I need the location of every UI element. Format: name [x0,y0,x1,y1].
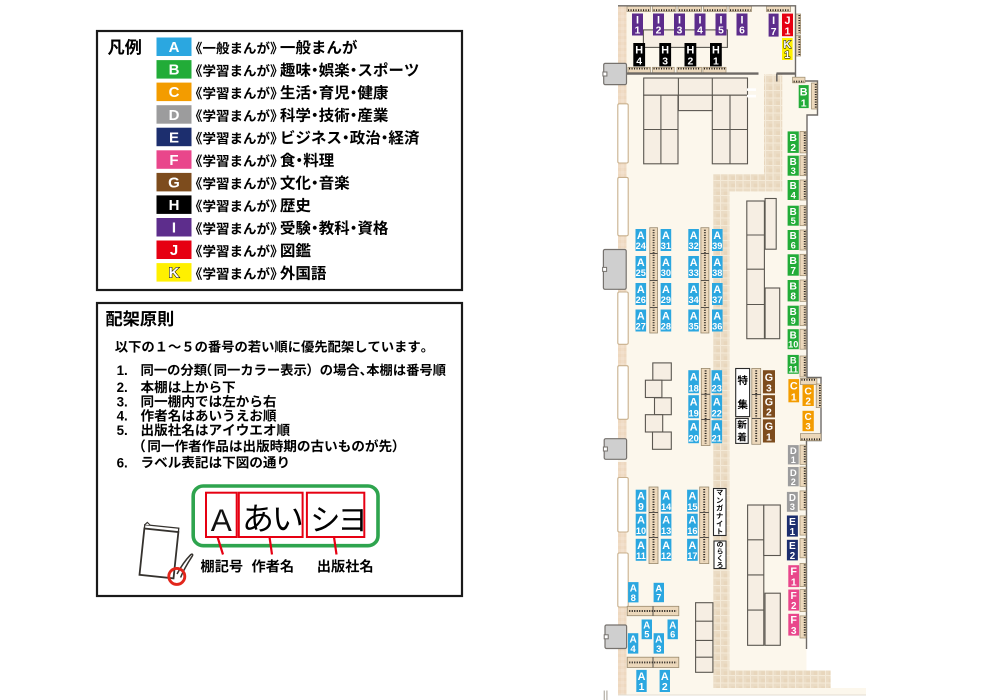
svg-text:A27: A27 [636,311,646,332]
svg-text:A33: A33 [688,257,698,278]
svg-text:A18: A18 [688,372,698,394]
svg-text:A: A [169,39,180,56]
svg-text:A25: A25 [636,257,646,278]
svg-text:A2: A2 [661,671,669,693]
svg-text:B4: B4 [790,181,797,200]
svg-text:A21: A21 [712,422,722,444]
svg-text:A15: A15 [687,491,697,512]
svg-text:3.: 3. [117,394,128,409]
svg-text:F1: F1 [790,566,797,588]
svg-text:A5: A5 [643,621,650,640]
svg-text:A8: A8 [630,583,637,604]
svg-text:A38: A38 [712,257,722,278]
svg-text:C: C [169,84,180,101]
svg-text:E2: E2 [789,541,796,562]
svg-text:A3: A3 [655,635,662,656]
svg-text:A12: A12 [661,540,671,561]
svg-text:H1: H1 [712,45,720,68]
svg-text:A30: A30 [661,257,671,278]
svg-text:A26: A26 [636,284,646,305]
svg-text:A36: A36 [712,311,722,332]
svg-text:A31: A31 [661,230,671,251]
svg-text:A11: A11 [636,540,646,561]
svg-text:A22: A22 [712,397,722,419]
svg-text:A39: A39 [712,230,722,251]
svg-text:J: J [170,242,178,259]
svg-text:1.: 1. [117,363,128,378]
svg-text:A28: A28 [661,311,671,332]
svg-text:2.: 2. [117,380,128,395]
svg-text:A10: A10 [636,515,646,536]
svg-text:4.: 4. [117,409,128,424]
svg-text:B6: B6 [790,231,797,250]
svg-text:E1: E1 [789,517,796,538]
svg-text:A29: A29 [661,284,671,305]
svg-text:5.: 5. [117,423,128,438]
svg-text:A13: A13 [661,515,671,536]
svg-text:D: D [169,107,180,124]
svg-text:G: G [168,175,180,192]
svg-text:F3: F3 [790,615,797,637]
svg-text:A6: A6 [669,621,676,640]
svg-text:H2: H2 [686,45,694,68]
svg-text:A7: A7 [655,584,662,603]
svg-text:A23: A23 [712,372,722,394]
svg-text:D1: D1 [790,446,797,465]
svg-text:I: I [172,220,176,237]
svg-text:A20: A20 [688,422,698,444]
svg-text:A37: A37 [712,284,722,305]
svg-text:A32: A32 [688,230,698,251]
svg-text:A19: A19 [688,397,698,419]
svg-text:A16: A16 [687,515,697,536]
svg-text:A: A [211,502,232,538]
svg-text:D2: D2 [790,468,797,487]
svg-text:K: K [169,265,180,282]
svg-text:B9: B9 [790,307,797,326]
svg-text:B5: B5 [790,207,797,226]
svg-text:E: E [169,129,179,146]
svg-text:6.: 6. [117,455,128,470]
svg-text:D3: D3 [789,493,796,512]
svg-text:A35: A35 [688,311,698,332]
svg-text:C1: C1 [790,381,798,404]
svg-text:H: H [169,197,180,214]
svg-text:B3: B3 [790,157,797,176]
svg-text:F: F [169,152,178,169]
svg-text:A17: A17 [687,540,697,561]
svg-text:J1: J1 [784,15,790,38]
svg-text:F2: F2 [791,591,797,612]
svg-text:C3: C3 [804,412,811,433]
svg-text:A4: A4 [629,635,636,656]
svg-text:B: B [169,62,180,79]
